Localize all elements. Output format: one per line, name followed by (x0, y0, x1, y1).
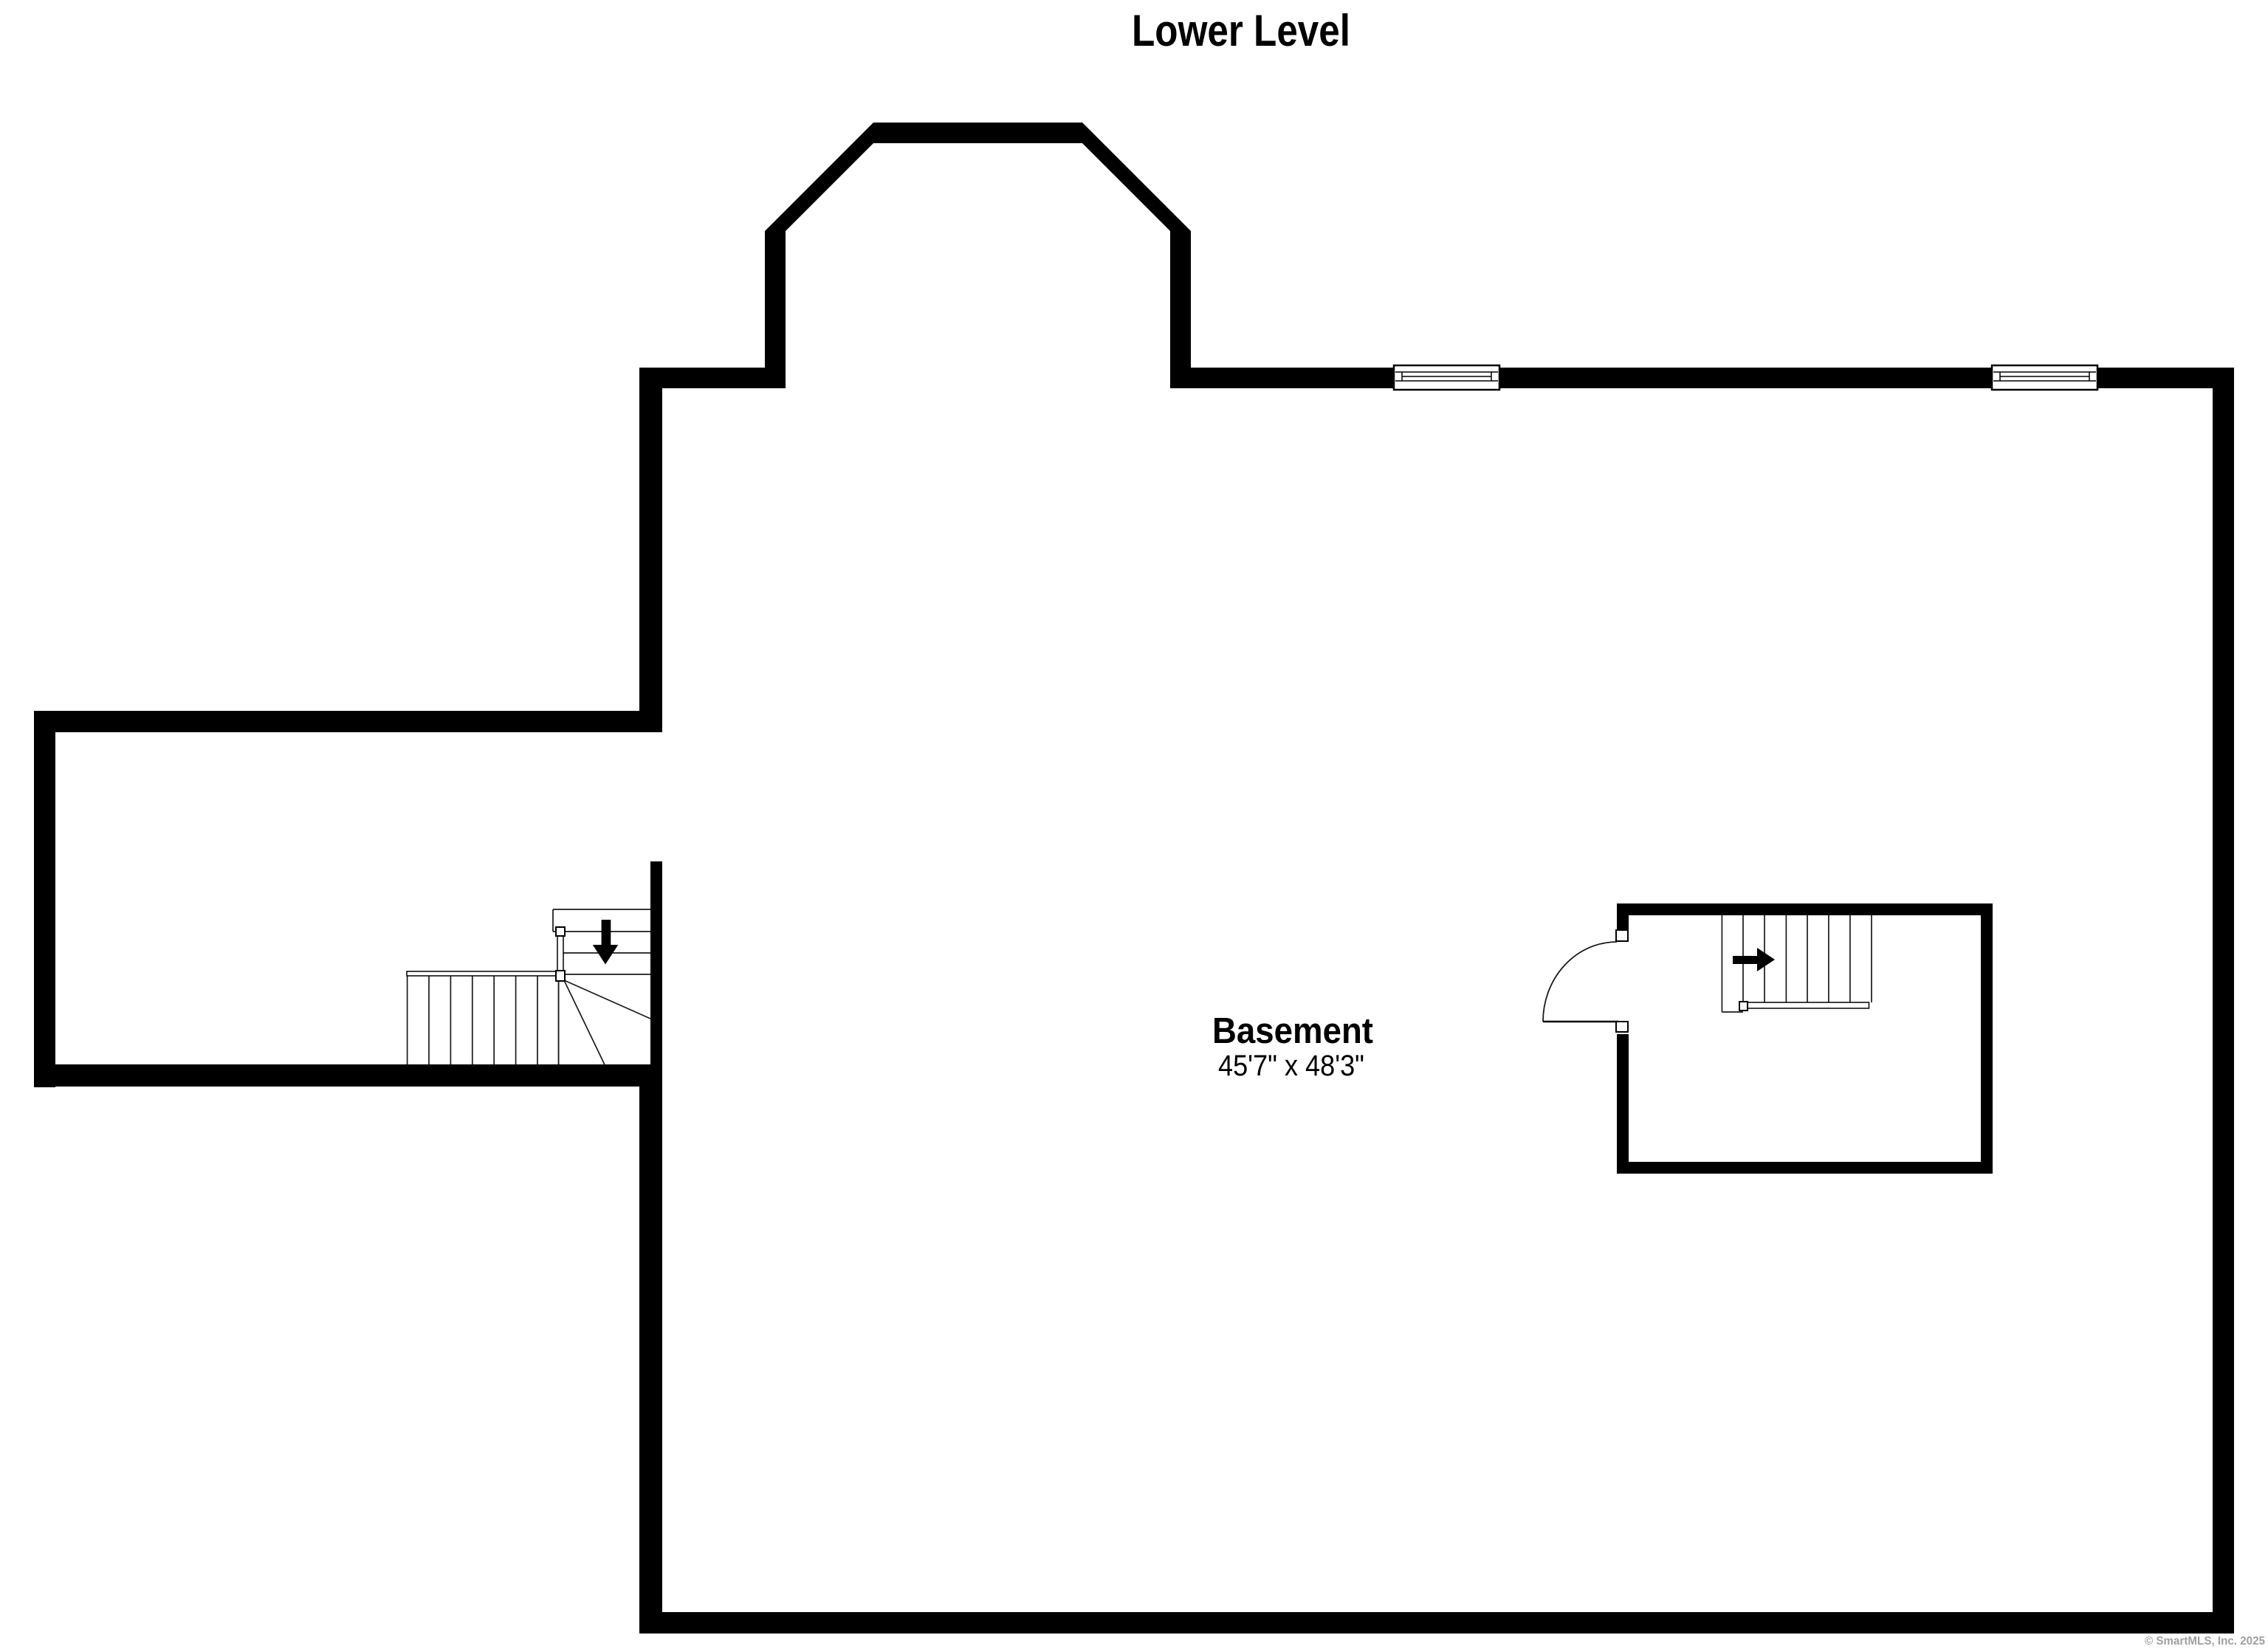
svg-text:Basement: Basement (1212, 1011, 1373, 1051)
svg-text:45'7" x 48'3": 45'7" x 48'3" (1218, 1050, 1364, 1082)
svg-text:Lower Level: Lower Level (1132, 6, 1350, 55)
svg-text:© SmartMLS, Inc. 2025: © SmartMLS, Inc. 2025 (2145, 1635, 2265, 1648)
